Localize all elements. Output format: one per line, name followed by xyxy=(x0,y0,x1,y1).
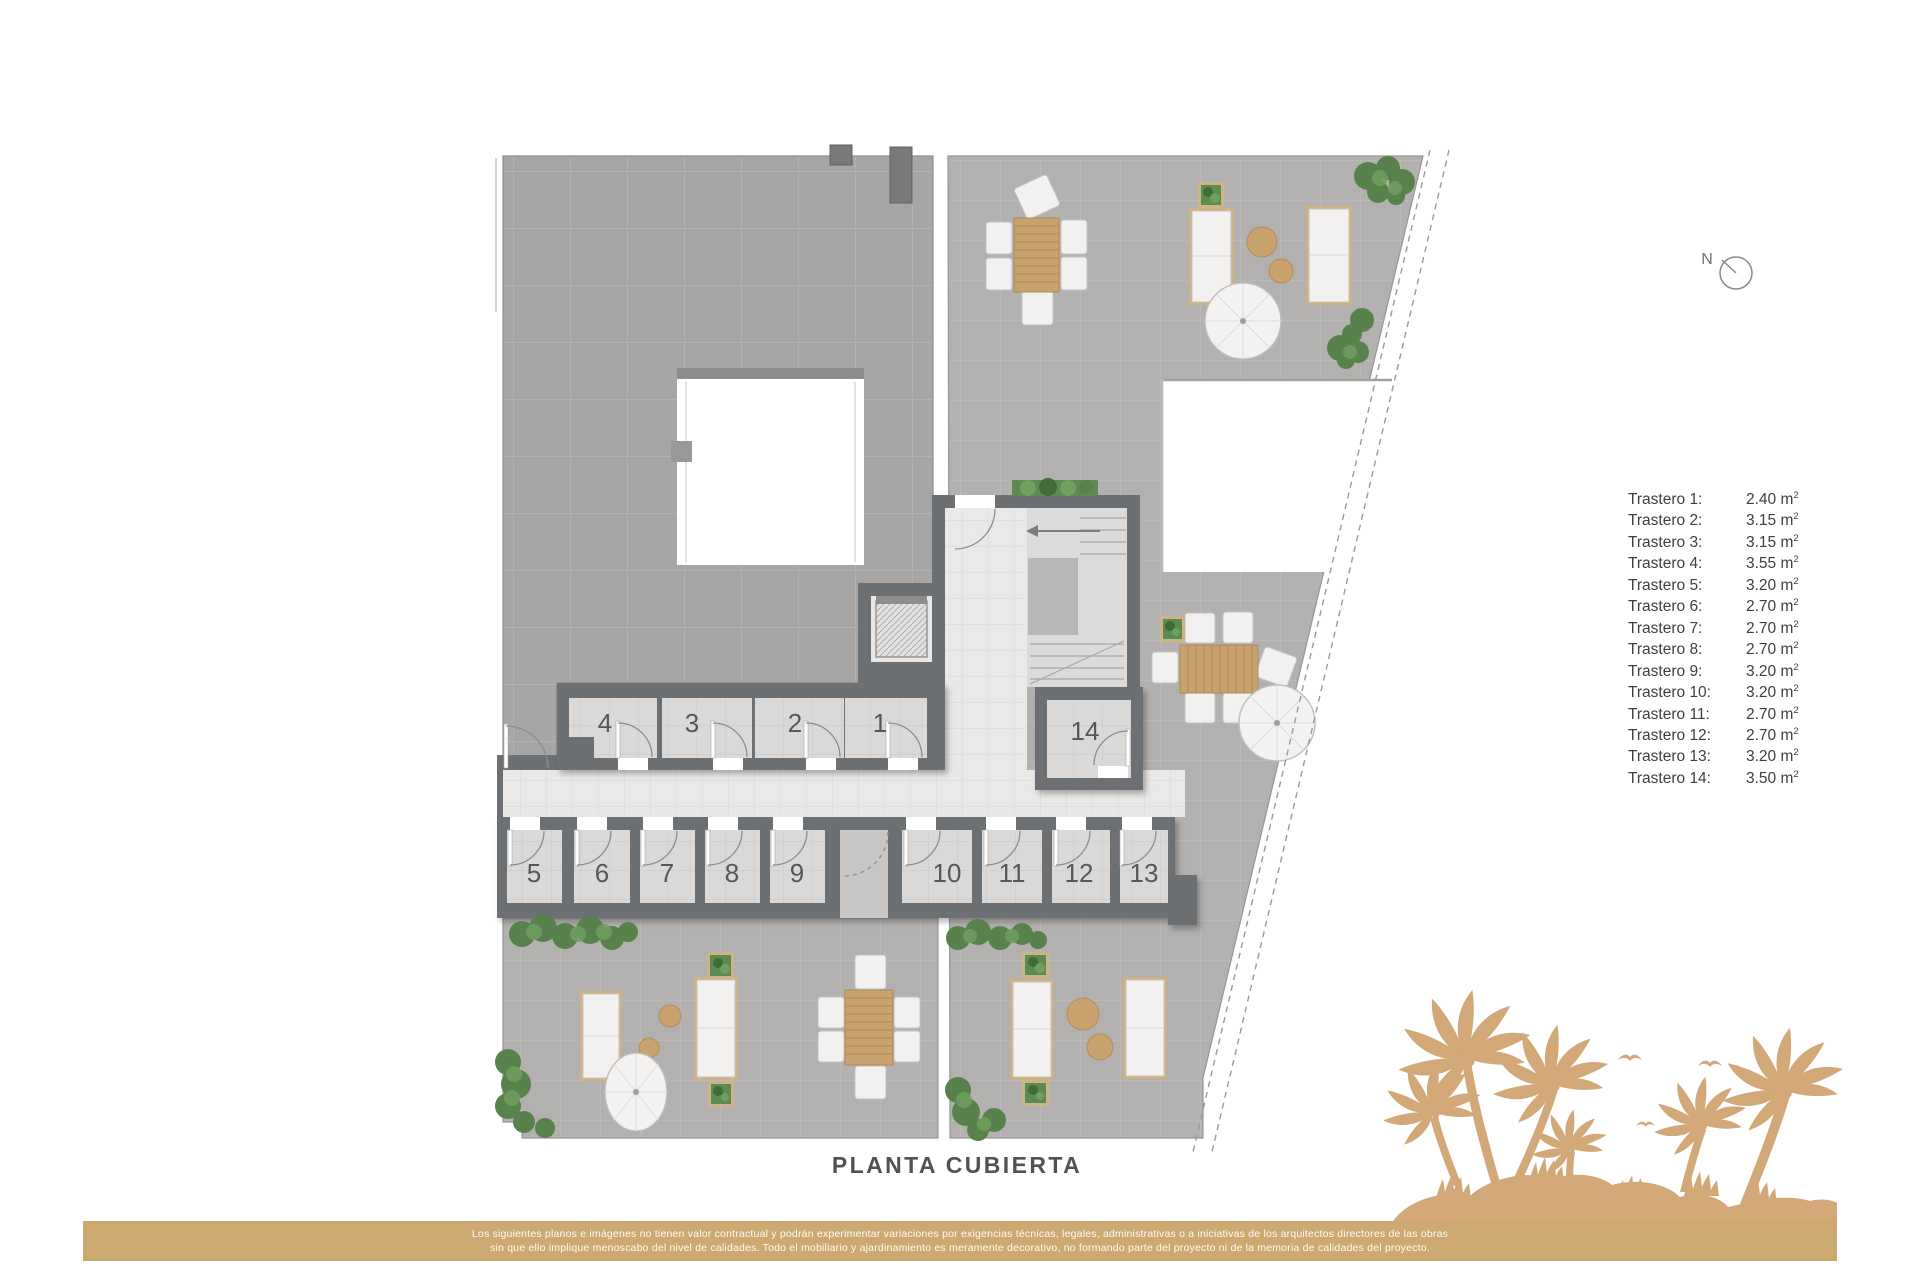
legend-room-area: 3.15 m2 xyxy=(1746,532,1799,553)
planter xyxy=(1198,182,1224,208)
parasol-icon xyxy=(1239,685,1315,761)
disclaimer-line1: Los siguientes planos e imágenes no tien… xyxy=(83,1227,1837,1241)
side-table xyxy=(659,1005,681,1027)
door-opening xyxy=(955,495,995,508)
parasol-icon xyxy=(605,1053,667,1131)
skylight-void xyxy=(677,379,864,565)
legend-room-label: Trastero 13: xyxy=(1628,746,1746,767)
storage-room-label: 2 xyxy=(788,708,802,738)
storage-room-label: 3 xyxy=(685,708,699,738)
storage-room-label: 5 xyxy=(527,858,541,888)
storage-room-label: 7 xyxy=(660,858,674,888)
legend-room-label: Trastero 3: xyxy=(1628,532,1746,553)
page: { "title": { "text": "PLANTA CUBIERTA" }… xyxy=(0,0,1920,1280)
storage-room-label: 11 xyxy=(999,858,1026,888)
legend-room-label: Trastero 4: xyxy=(1628,553,1746,574)
legend-room-area: 3.55 m2 xyxy=(1746,553,1799,574)
storage-room xyxy=(662,698,752,758)
planter xyxy=(708,1081,734,1107)
legend-room-label: Trastero 11: xyxy=(1628,704,1746,725)
legend-room-area: 2.70 m2 xyxy=(1746,618,1799,639)
legend-row: Trastero 4: 3.55 m2 xyxy=(1628,553,1799,574)
legend-room-area: 2.70 m2 xyxy=(1746,725,1799,746)
storage-room-label: 10 xyxy=(933,858,962,888)
side-table xyxy=(1247,227,1277,257)
legend-room-label: Trastero 10: xyxy=(1628,682,1746,703)
planter xyxy=(1160,616,1185,642)
legend-room-area: 2.70 m2 xyxy=(1746,704,1799,725)
side-table xyxy=(1087,1034,1113,1060)
stair-landing xyxy=(1028,558,1078,635)
legend-row: Trastero 13: 3.20 m2 xyxy=(1628,746,1799,767)
storage-room-label: 4 xyxy=(598,708,612,738)
legend-room-label: Trastero 12: xyxy=(1628,725,1746,746)
legend-room-area: 2.40 m2 xyxy=(1746,489,1799,510)
side-table xyxy=(1067,998,1099,1030)
planter xyxy=(1022,952,1049,978)
legend-room-label: Trastero 14: xyxy=(1628,768,1746,789)
palm-tree xyxy=(1493,1024,1608,1183)
page-title: PLANTA CUBIERTA xyxy=(757,1152,1157,1179)
legend-room-label: Trastero 1: xyxy=(1628,489,1746,510)
legend-row: Trastero 5: 3.20 m2 xyxy=(1628,575,1799,596)
legend-room-area: 3.20 m2 xyxy=(1746,746,1799,767)
legend-room-area: 2.70 m2 xyxy=(1746,596,1799,617)
legend-room-label: Trastero 5: xyxy=(1628,575,1746,596)
table xyxy=(1180,645,1258,693)
storage-room-label: 8 xyxy=(725,858,739,888)
palm-tree xyxy=(1722,1027,1843,1205)
legend-row: Trastero 11: 2.70 m2 xyxy=(1628,704,1799,725)
bird-icon xyxy=(1618,1055,1642,1061)
legend-row: Trastero 2: 3.15 m2 xyxy=(1628,510,1799,531)
palm-island-illustration xyxy=(1383,989,1843,1221)
legend-room-label: Trastero 6: xyxy=(1628,596,1746,617)
legend-room-area: 3.20 m2 xyxy=(1746,575,1799,596)
storage-room-label: 12 xyxy=(1065,858,1094,888)
legend-row: Trastero 1: 2.40 m2 xyxy=(1628,489,1799,510)
disclaimer-bar: Los siguientes planos e imágenes no tien… xyxy=(83,1221,1837,1261)
legend-row: Trastero 9: 3.20 m2 xyxy=(1628,661,1799,682)
legend-row: Trastero 12: 2.70 m2 xyxy=(1628,725,1799,746)
disclaimer-line2: sin que ello implique menoscabo del nive… xyxy=(83,1241,1837,1255)
side-table xyxy=(1269,259,1293,283)
storage-legend: Trastero 1: 2.40 m2 Trastero 2: 3.15 m2 … xyxy=(1628,489,1799,789)
chimney xyxy=(830,145,852,165)
legend-room-area: 2.70 m2 xyxy=(1746,639,1799,660)
legend-room-area: 3.20 m2 xyxy=(1746,682,1799,703)
legend-row: Trastero 7: 2.70 m2 xyxy=(1628,618,1799,639)
passage xyxy=(840,830,888,918)
legend-room-area: 3.20 m2 xyxy=(1746,661,1799,682)
roof-box xyxy=(671,441,692,462)
legend-room-label: Trastero 9: xyxy=(1628,661,1746,682)
elevator xyxy=(871,596,932,662)
legend-room-label: Trastero 2: xyxy=(1628,510,1746,531)
bird-icon xyxy=(1636,1122,1655,1127)
skylight-parapet xyxy=(677,368,864,379)
planter xyxy=(1022,1080,1049,1106)
legend-row: Trastero 8: 2.70 m2 xyxy=(1628,639,1799,660)
table xyxy=(1014,218,1059,292)
legend-row: Trastero 6: 2.70 m2 xyxy=(1628,596,1799,617)
storage-room-label: 13 xyxy=(1130,858,1159,888)
compass: N xyxy=(1701,251,1752,289)
storage-room-label: 6 xyxy=(595,858,609,888)
legend-room-area: 3.50 m2 xyxy=(1746,768,1799,789)
planter xyxy=(1012,478,1098,496)
legend-row: Trastero 14: 3.50 m2 xyxy=(1628,768,1799,789)
storage-room-label: 9 xyxy=(790,858,804,888)
legend-room-area: 3.15 m2 xyxy=(1746,510,1799,531)
storage-room-label: 14 xyxy=(1071,716,1100,746)
chimney xyxy=(890,147,912,203)
legend-rows: Trastero 1: 2.40 m2 Trastero 2: 3.15 m2 … xyxy=(1628,489,1799,789)
compass-north-label: N xyxy=(1701,251,1713,268)
legend-row: Trastero 10: 3.20 m2 xyxy=(1628,682,1799,703)
legend-room-label: Trastero 7: xyxy=(1628,618,1746,639)
legend-row: Trastero 3: 3.15 m2 xyxy=(1628,532,1799,553)
storage-room-label: 1 xyxy=(873,708,887,738)
planter xyxy=(707,952,734,979)
bird-icon xyxy=(1698,1061,1722,1067)
legend-room-label: Trastero 8: xyxy=(1628,639,1746,660)
parasol-icon xyxy=(1205,283,1281,359)
terrace-void xyxy=(1162,379,1392,572)
